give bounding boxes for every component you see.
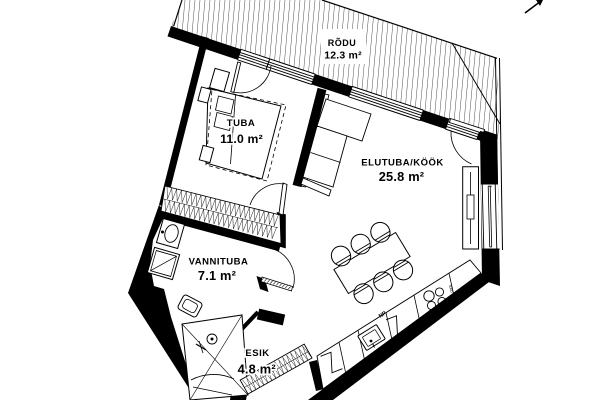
svg-text:VANNITUBA: VANNITUBA xyxy=(189,257,249,268)
svg-text:7.1 m²: 7.1 m² xyxy=(198,268,236,283)
svg-text:ESIK: ESIK xyxy=(245,348,269,359)
svg-text:ELUTUBA/KÖÖK: ELUTUBA/KÖÖK xyxy=(361,158,444,169)
svg-text:RÕDU: RÕDU xyxy=(328,38,357,48)
svg-text:TUBA: TUBA xyxy=(227,118,255,129)
svg-text:25.8 m²: 25.8 m² xyxy=(379,169,425,184)
svg-text:11.0 m²: 11.0 m² xyxy=(220,132,263,146)
svg-text:4.8 m²: 4.8 m² xyxy=(238,362,276,377)
svg-text:12.3 m²: 12.3 m² xyxy=(324,50,362,62)
